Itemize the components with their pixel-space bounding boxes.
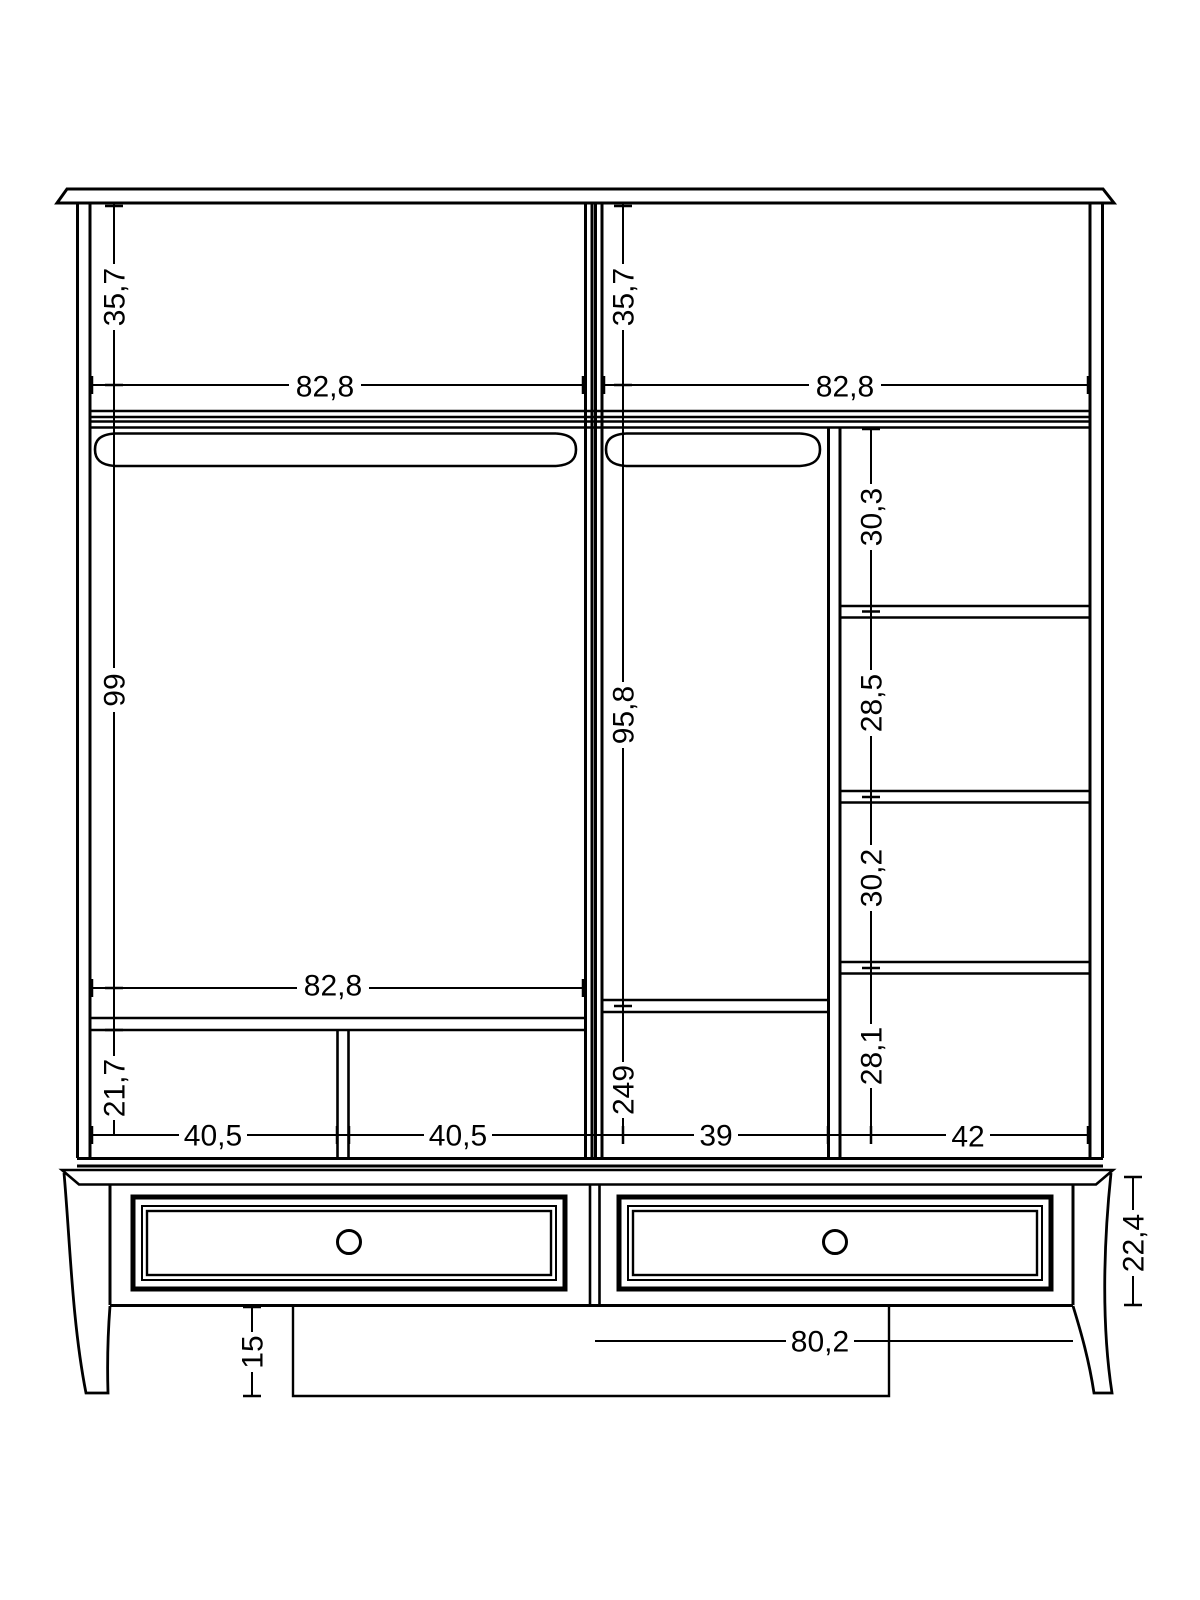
dim-label-82-8-top-right: 82,8	[809, 370, 881, 404]
dimension-text: 30,2	[856, 849, 889, 907]
dim-label-28-1: 28,1	[855, 1024, 889, 1088]
dimension-text: 30,3	[856, 488, 889, 546]
dim-label-22-4: 22,4	[1117, 1210, 1151, 1276]
dimension-text: 249	[608, 1065, 641, 1115]
dimension-text: 82,8	[296, 371, 354, 404]
dimension-text: 35,7	[99, 268, 132, 326]
dim-label-40-5-b: 40,5	[424, 1119, 492, 1153]
dimension-text: 42	[951, 1121, 984, 1154]
dimension-text: 99	[99, 673, 132, 706]
drawing-background	[0, 0, 1200, 1600]
dimension-text: 35,7	[608, 268, 641, 326]
dim-label-15: 15	[236, 1332, 270, 1372]
dim-label-82-8-top-left: 82,8	[289, 370, 361, 404]
dimension-text: 21,7	[99, 1059, 132, 1117]
dim-label-82-8-mid: 82,8	[297, 969, 369, 1003]
dim-label-21-7: 21,7	[98, 1056, 132, 1120]
dimension-text: 28,1	[856, 1027, 889, 1085]
dim-label-35-7-left: 35,7	[98, 264, 132, 330]
dimension-text: 40,5	[184, 1120, 242, 1153]
dim-label-30-2: 30,2	[855, 845, 889, 911]
dim-label-39: 39	[694, 1119, 738, 1153]
dim-label-99: 99	[98, 668, 132, 712]
dimension-text: 39	[699, 1120, 732, 1153]
dimension-text: 82,8	[304, 970, 362, 1003]
technical-drawing-page: 35,7 35,7 99 95,8 30,3 28,5 30,2 21,7	[0, 0, 1200, 1600]
dim-label-28-5: 28,5	[855, 670, 889, 736]
dimension-text: 80,2	[791, 1326, 849, 1359]
dim-label-42: 42	[946, 1120, 990, 1154]
dimension-text: 22,4	[1118, 1214, 1151, 1272]
dim-label-249: 249	[607, 1062, 641, 1118]
dimension-text: 95,8	[608, 686, 641, 744]
dim-label-95-8: 95,8	[607, 682, 641, 748]
dimension-text: 15	[237, 1335, 270, 1368]
dim-label-40-5-a: 40,5	[179, 1119, 247, 1153]
dim-label-35-7-right: 35,7	[607, 264, 641, 330]
wardrobe-front-elevation-drawing: 35,7 35,7 99 95,8 30,3 28,5 30,2 21,7	[0, 0, 1200, 1600]
dim-label-30-3: 30,3	[855, 484, 889, 550]
dimension-text: 40,5	[429, 1120, 487, 1153]
dimension-text: 28,5	[856, 674, 889, 732]
dimension-text: 82,8	[816, 371, 874, 404]
dim-label-80-2: 80,2	[786, 1325, 854, 1359]
